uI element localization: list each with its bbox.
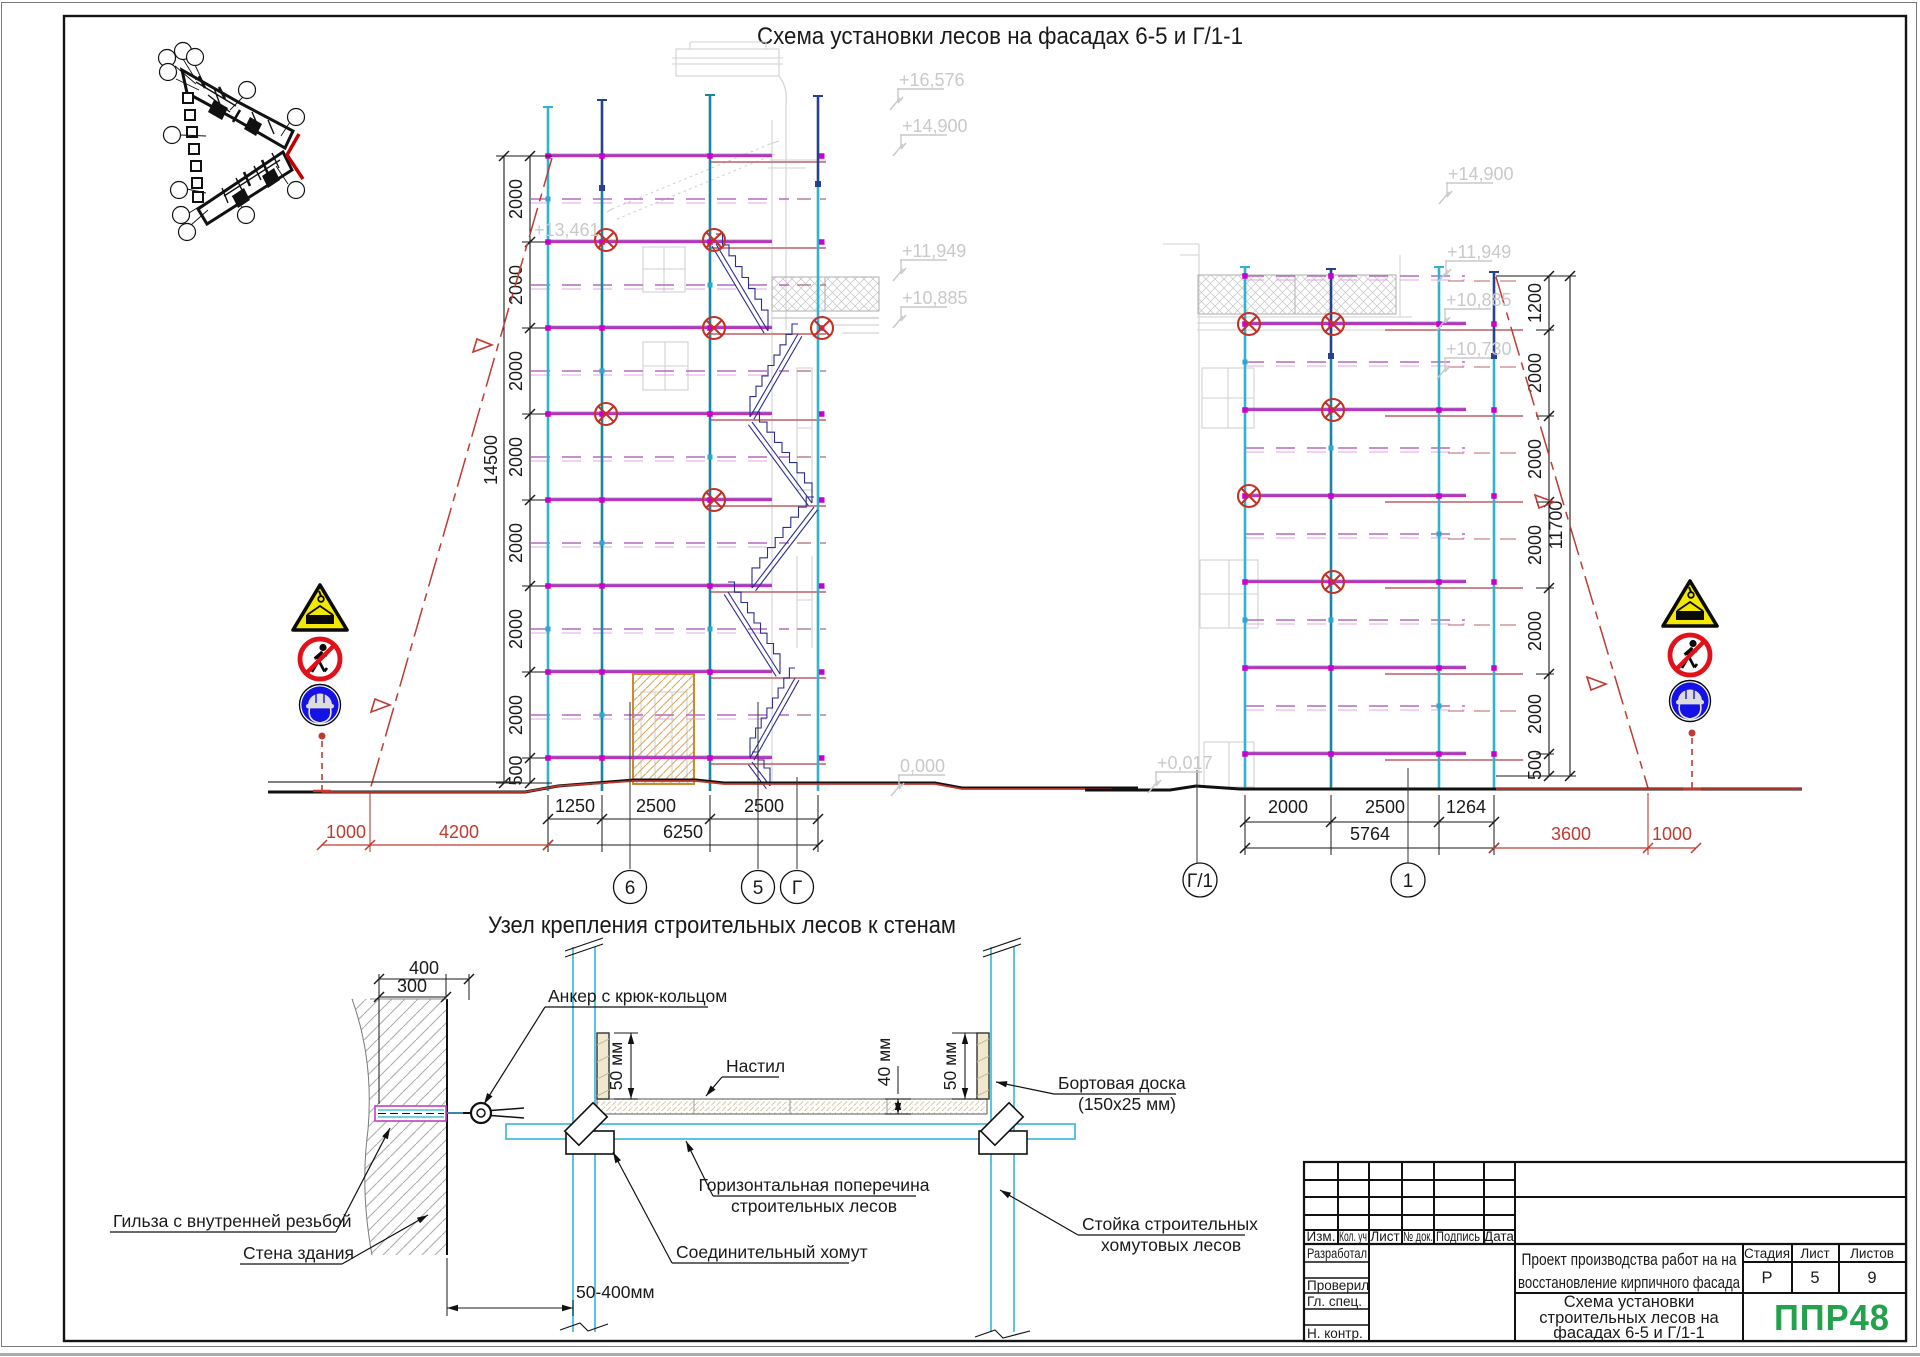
svg-text:Г: Г — [792, 878, 802, 899]
svg-text:2000: 2000 — [506, 179, 526, 219]
svg-text:2000: 2000 — [1525, 611, 1545, 651]
svg-text:строительных лесов: строительных лесов — [731, 1196, 897, 1216]
svg-text:2000: 2000 — [1268, 797, 1308, 817]
svg-text:Лист: Лист — [1370, 1229, 1399, 1244]
svg-text:Листов: Листов — [1850, 1246, 1894, 1261]
svg-text:6: 6 — [625, 878, 636, 899]
svg-text:№ док.: № док. — [1403, 1229, 1433, 1244]
svg-text:2500: 2500 — [636, 796, 676, 816]
svg-text:+13,461: +13,461 — [534, 220, 600, 240]
svg-text:14500: 14500 — [481, 435, 501, 485]
svg-text:Горизонтальная поперечина: Горизонтальная поперечина — [699, 1175, 930, 1195]
svg-text:Узел крепления строительных ле: Узел крепления строительных лесов к стен… — [488, 912, 956, 939]
svg-text:40 мм: 40 мм — [874, 1038, 894, 1086]
svg-text:50 мм: 50 мм — [606, 1042, 626, 1090]
svg-text:+11,949: +11,949 — [902, 241, 966, 261]
svg-text:Г/1: Г/1 — [1187, 871, 1213, 892]
svg-text:2000: 2000 — [1525, 694, 1545, 734]
svg-text:4200: 4200 — [439, 822, 479, 842]
svg-text:5: 5 — [1810, 1269, 1819, 1287]
svg-text:1000: 1000 — [1652, 824, 1692, 844]
svg-text:(150х25 мм): (150х25 мм) — [1078, 1094, 1176, 1114]
svg-text:1200: 1200 — [1525, 283, 1545, 323]
svg-text:Бортовая доска: Бортовая доска — [1058, 1073, 1186, 1093]
svg-text:500: 500 — [506, 755, 526, 785]
svg-text:Р: Р — [1761, 1269, 1772, 1287]
svg-text:+14,900: +14,900 — [1448, 164, 1514, 184]
svg-text:0,000: 0,000 — [900, 756, 945, 776]
svg-text:50-400мм: 50-400мм — [576, 1282, 655, 1302]
svg-text:Соединительный хомут: Соединительный хомут — [676, 1242, 868, 1262]
svg-text:300: 300 — [397, 976, 427, 996]
svg-text:2000: 2000 — [506, 351, 526, 391]
svg-text:5764: 5764 — [1350, 824, 1390, 844]
svg-text:Стойка строительных: Стойка строительных — [1082, 1214, 1258, 1234]
svg-text:Лист: Лист — [1800, 1246, 1829, 1261]
svg-text:9: 9 — [1867, 1269, 1876, 1287]
svg-text:Схема установки лесов на фасад: Схема установки лесов на фасадах 6-5 и Г… — [757, 23, 1243, 50]
svg-text:Стена здания: Стена здания — [243, 1243, 354, 1263]
svg-text:Гл. спец.: Гл. спец. — [1307, 1294, 1362, 1309]
svg-text:500: 500 — [1525, 750, 1545, 780]
svg-text:Н. контр.: Н. контр. — [1307, 1326, 1363, 1341]
svg-text:Гильза с внутренней резьбой: Гильза с внутренней резьбой — [113, 1211, 351, 1231]
svg-text:6250: 6250 — [663, 822, 703, 842]
svg-text:фасадах 6-5 и Г/1-1: фасадах 6-5 и Г/1-1 — [1553, 1324, 1704, 1342]
svg-text:Разработал: Разработал — [1307, 1246, 1367, 1261]
svg-text:Проверил: Проверил — [1307, 1278, 1369, 1293]
svg-text:1264: 1264 — [1446, 797, 1486, 817]
svg-text:Проект производства работ на н: Проект производства работ на на — [1522, 1251, 1738, 1269]
svg-text:Подпись: Подпись — [1436, 1229, 1480, 1244]
svg-text:2500: 2500 — [1365, 797, 1405, 817]
svg-text:5: 5 — [753, 878, 764, 899]
svg-text:50 мм: 50 мм — [940, 1042, 960, 1090]
svg-text:Стадия: Стадия — [1744, 1246, 1790, 1261]
svg-text:1250: 1250 — [555, 796, 595, 816]
svg-text:+10,885: +10,885 — [902, 288, 968, 308]
svg-text:+10,730: +10,730 — [1446, 339, 1512, 359]
svg-text:Анкер с крюк-кольцом: Анкер с крюк-кольцом — [548, 986, 727, 1006]
svg-text:11700: 11700 — [1546, 501, 1566, 550]
svg-text:1000: 1000 — [326, 822, 366, 842]
svg-text:400: 400 — [409, 958, 439, 978]
svg-text:2000: 2000 — [1525, 439, 1545, 479]
svg-text:+0,017: +0,017 — [1157, 753, 1213, 773]
svg-text:ППР48: ППР48 — [1774, 1297, 1890, 1338]
svg-text:3600: 3600 — [1551, 824, 1591, 844]
svg-text:+14,900: +14,900 — [902, 116, 968, 136]
svg-text:+16,576: +16,576 — [899, 70, 965, 90]
svg-text:2500: 2500 — [744, 796, 784, 816]
svg-text:2000: 2000 — [506, 609, 526, 649]
svg-text:+10,885: +10,885 — [1446, 290, 1512, 310]
svg-text:2000: 2000 — [506, 523, 526, 563]
svg-text:Кол. уч: Кол. уч — [1339, 1229, 1367, 1244]
svg-text:2000: 2000 — [1525, 525, 1545, 565]
svg-text:восстановление кирпичного фаса: восстановление кирпичного фасада — [1518, 1274, 1741, 1292]
svg-text:Изм.: Изм. — [1307, 1229, 1336, 1244]
svg-text:хомутовых лесов: хомутовых лесов — [1101, 1235, 1241, 1255]
svg-text:+11,949: +11,949 — [1447, 242, 1511, 262]
svg-text:1: 1 — [1403, 871, 1414, 892]
svg-text:Дата: Дата — [1484, 1229, 1514, 1244]
svg-text:2000: 2000 — [506, 437, 526, 477]
svg-text:Настил: Настил — [726, 1056, 785, 1076]
svg-text:2000: 2000 — [506, 695, 526, 735]
